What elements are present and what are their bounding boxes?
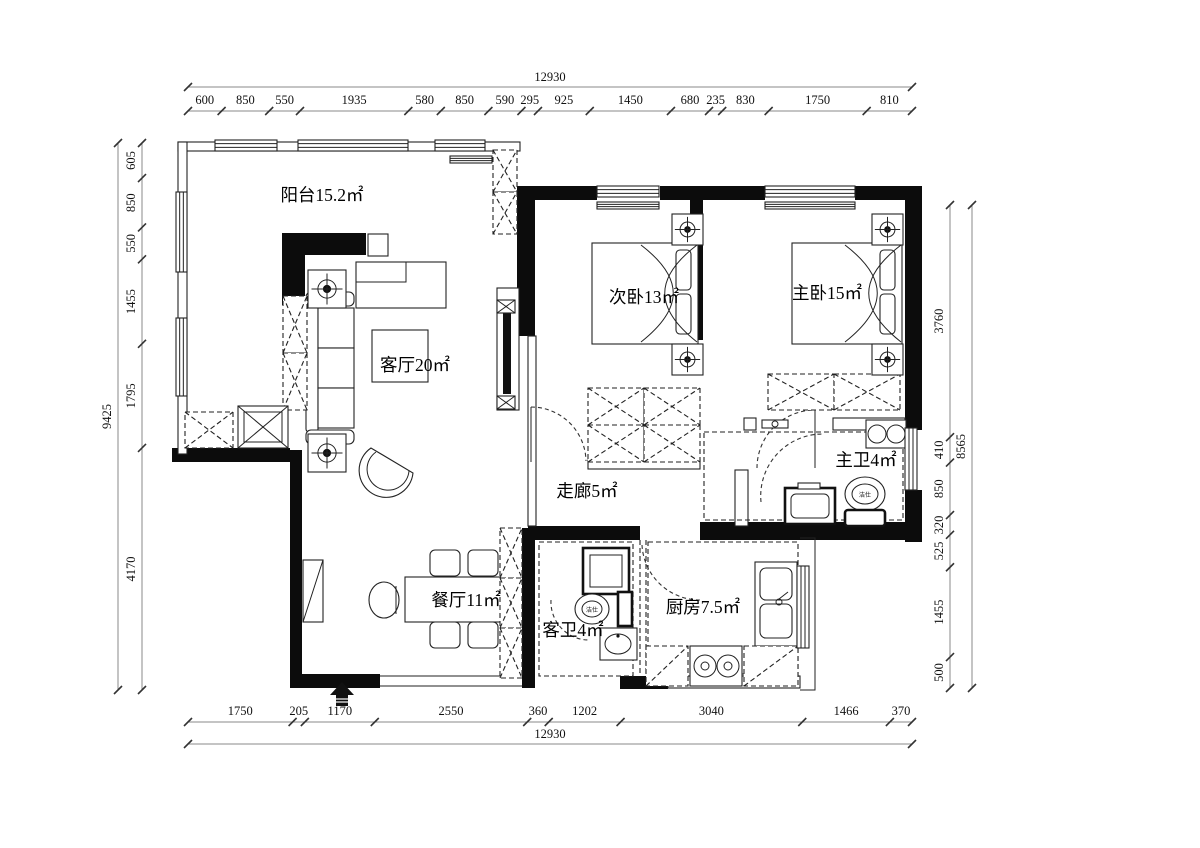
toilet-icon: 洁仕: [845, 477, 885, 526]
kitchen-sink-icon: [755, 562, 797, 646]
window-icon: [450, 156, 492, 163]
dim-label: 525: [932, 542, 946, 561]
dim-label: 925: [554, 93, 573, 107]
window-icon: [597, 202, 659, 209]
room-label-guest-bath: 客卫4㎡: [542, 620, 604, 640]
dim-label: 850: [455, 93, 474, 107]
dim-label: 410: [932, 441, 946, 460]
dim-label: 850: [124, 193, 138, 212]
dim-label: 1455: [932, 600, 946, 625]
dim-label: 1466: [834, 704, 859, 718]
window-icon: [765, 202, 855, 209]
dim-label: 1170: [328, 704, 353, 718]
room-label-balcony: 阳台15.2㎡: [280, 185, 364, 205]
dim-label: 1202: [572, 704, 597, 718]
toilet-brand-label: 洁仕: [859, 491, 871, 499]
dim-label: 580: [415, 93, 434, 107]
room-label-kitchen: 厨房7.5㎡: [666, 597, 741, 617]
dim-label: 3760: [932, 309, 946, 334]
side-table-icon: [356, 262, 446, 308]
window-icon: [176, 192, 187, 272]
dim-label: 235: [706, 93, 725, 107]
sofa-icon: [306, 292, 354, 444]
dim-label: 850: [236, 93, 255, 107]
dim-label: 1455: [124, 289, 138, 314]
room-label-dining: 餐厅11㎡: [431, 590, 501, 610]
bathroom-sink-icon: [600, 628, 637, 660]
window-icon: [435, 140, 485, 151]
tall-cabinet-icon: [303, 560, 323, 622]
dim-label: 2550: [438, 704, 463, 718]
dim-label: 1795: [124, 383, 138, 408]
shower-tray-icon: [583, 548, 629, 594]
dim-label: 1750: [805, 93, 830, 107]
cabinet-and-window-symbols: [176, 140, 917, 686]
shower-tray-icon: [785, 483, 835, 524]
room-label-bedroom2: 次卧13㎡: [609, 287, 679, 307]
dim-label: 1935: [342, 93, 367, 107]
dim-label: 500: [932, 663, 946, 682]
dim-label: 295: [520, 93, 539, 107]
window-icon: [298, 140, 408, 151]
dim-label: 550: [124, 234, 138, 253]
dim-label: 810: [880, 93, 899, 107]
dim-label: 12930: [534, 70, 565, 84]
dim-label: 680: [681, 93, 700, 107]
dim-label: 9425: [100, 404, 114, 429]
window-icon: [597, 186, 659, 197]
room-label-living: 客厅20㎡: [380, 355, 450, 375]
window-icon: [765, 186, 855, 197]
dim-label: 550: [275, 93, 294, 107]
dim-label: 600: [195, 93, 214, 107]
window-icon: [176, 318, 187, 396]
leisure-chair-icon: [359, 448, 413, 497]
dim-label: 12930: [534, 727, 565, 741]
stove-icon: [690, 646, 742, 686]
dim-label: 850: [932, 479, 946, 498]
window-icon: [905, 428, 917, 490]
window-icon: [215, 140, 277, 151]
dim-label: 1750: [228, 704, 253, 718]
dim-label: 830: [736, 93, 755, 107]
dim-label: 8565: [954, 434, 968, 459]
floor-plan-drawing: 6008505501935580850590295925145068023583…: [0, 0, 1200, 848]
room-label-corridor: 走廊5㎡: [556, 481, 618, 501]
dim-label: 360: [529, 704, 548, 718]
room-label-master-bath: 主卫4㎡: [835, 450, 897, 470]
dim-label: 3040: [699, 704, 724, 718]
toilet-brand-label: 洁仕: [586, 606, 598, 614]
dim-label: 4170: [124, 556, 138, 581]
dim-label: 1450: [618, 93, 643, 107]
faucet-icon: [762, 420, 788, 428]
room-label-master-bedroom: 主卧15㎡: [792, 283, 862, 303]
window-icon: [797, 566, 809, 648]
dim-label: 205: [289, 704, 308, 718]
dim-label: 320: [932, 516, 946, 535]
dim-label: 605: [124, 151, 138, 170]
dim-label: 590: [496, 93, 515, 107]
dim-label: 370: [892, 704, 911, 718]
floor-plan-page: 6008505501935580850590295925145068023583…: [0, 0, 1200, 848]
washing-machine-icon: [866, 420, 906, 448]
